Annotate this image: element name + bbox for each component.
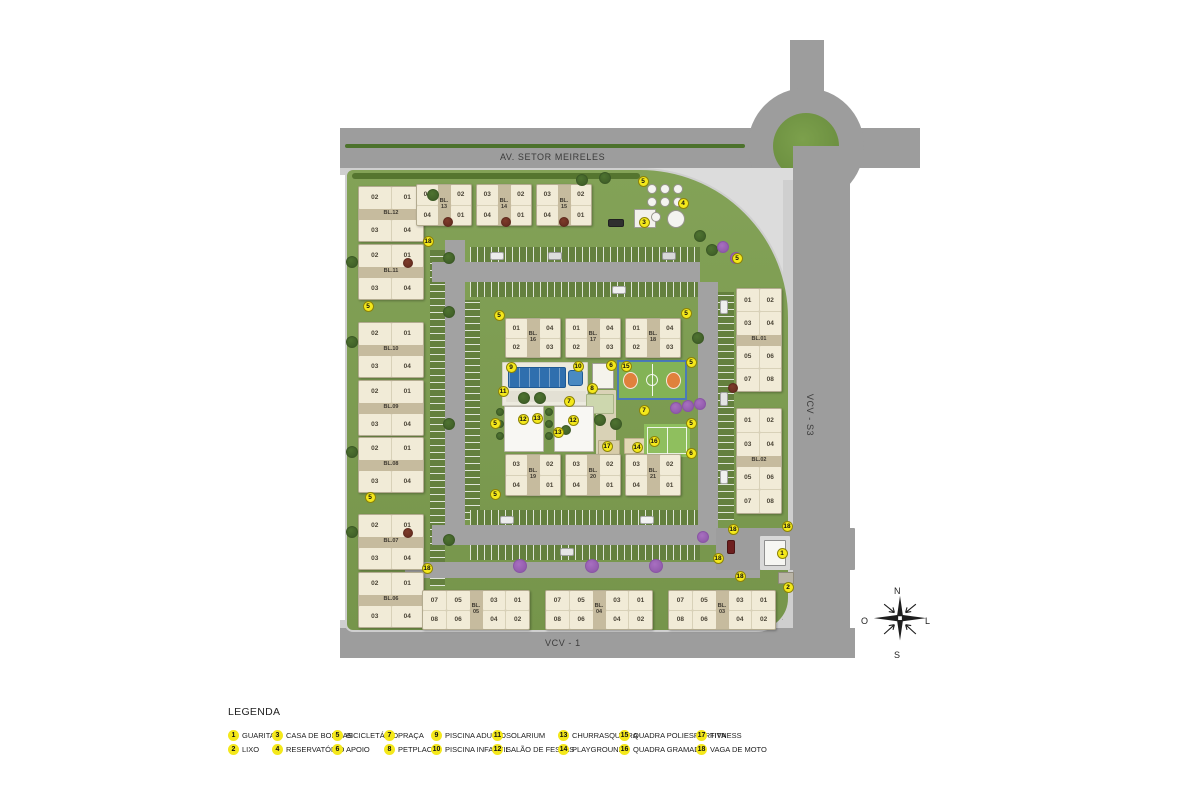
unit-04: 04 [600, 319, 621, 338]
green-tree [610, 418, 622, 430]
map-marker-1: 1 [777, 548, 788, 559]
parked-car [727, 540, 735, 554]
building-units: 07050806 [423, 591, 470, 629]
grass-court-mid-line [667, 427, 668, 454]
water-tank-small [651, 212, 661, 222]
unit-01: 01 [737, 289, 759, 311]
parked-car [720, 392, 728, 406]
building-units: 0403 [600, 319, 621, 357]
parking-stalls [465, 300, 480, 520]
building-label-BL.05: BL.05 [470, 591, 483, 629]
unit-08: 08 [423, 611, 446, 630]
unit-04: 04 [729, 611, 752, 630]
building-BL.06: 0201BL.060304 [358, 572, 424, 628]
building-label-BL.03: BL.03 [716, 591, 729, 629]
map-marker-18: 18 [422, 563, 433, 574]
building-units: 0201 [359, 187, 423, 209]
unit-02: 02 [506, 339, 527, 358]
unit-03: 03 [477, 185, 498, 205]
unit-03: 03 [540, 339, 561, 358]
green-tree [346, 526, 358, 538]
unit-01: 01 [629, 591, 652, 610]
legend-title: LEGENDA [228, 706, 280, 718]
map-marker-5: 5 [732, 253, 743, 264]
unit-01: 01 [626, 319, 647, 338]
green-tree [443, 534, 455, 546]
site-plan: AV. SETOR MEIRELES VCV - S3 VCV - 1 0201… [0, 0, 1200, 800]
map-marker-4: 4 [678, 198, 689, 209]
unit-03: 03 [359, 471, 391, 493]
building-BL.07: 0201BL.070304 [358, 514, 424, 570]
map-marker-3: 3 [639, 217, 650, 228]
purple-tree [670, 402, 682, 414]
unit-02: 02 [359, 438, 391, 460]
hedge-row [352, 173, 640, 179]
unit-07: 07 [737, 369, 759, 391]
unit-03: 03 [359, 220, 391, 242]
map-marker-5: 5 [363, 301, 374, 312]
unit-03: 03 [660, 339, 681, 358]
building-units: 0304 [537, 185, 558, 225]
map-marker-13: 13 [553, 427, 564, 438]
compass-rose-icon [872, 592, 928, 648]
unit-04: 04 [540, 319, 561, 338]
unit-05: 05 [737, 346, 759, 368]
purple-tree [694, 398, 706, 410]
building-units: 03010402 [606, 591, 653, 629]
compass-west-label: O [861, 616, 868, 626]
parked-car [560, 548, 574, 556]
red-tree [559, 217, 569, 227]
unit-02: 02 [660, 455, 681, 475]
building-label-BL.07: BL.07 [359, 537, 423, 548]
unit-02: 02 [359, 515, 391, 537]
unit-07: 07 [669, 591, 692, 610]
building-units: 07050806 [546, 591, 593, 629]
map-marker-5: 5 [490, 489, 501, 500]
unit-03: 03 [729, 591, 752, 610]
green-tree [427, 189, 439, 201]
building-units: 05060708 [737, 346, 781, 392]
kids-pool [568, 370, 583, 386]
map-marker-5: 5 [686, 357, 697, 368]
unit-04: 04 [566, 476, 587, 496]
green-tree [545, 408, 553, 416]
unit-06: 06 [760, 346, 782, 368]
water-tank-small [660, 197, 670, 207]
compass-east-label: L [925, 616, 930, 626]
red-tree [403, 528, 413, 538]
unit-04: 04 [483, 611, 506, 630]
green-tree [496, 408, 504, 416]
unit-03: 03 [359, 414, 391, 436]
water-tank-small [647, 184, 657, 194]
unit-03: 03 [737, 312, 759, 334]
green-tree [443, 252, 455, 264]
unit-05: 05 [693, 591, 716, 610]
building-units: 0201 [359, 323, 423, 345]
unit-08: 08 [760, 369, 782, 391]
map-marker-16: 16 [649, 436, 660, 447]
unit-01: 01 [511, 206, 532, 226]
unit-03: 03 [483, 591, 506, 610]
unit-01: 01 [451, 206, 472, 226]
building-units: 0102 [626, 319, 647, 357]
building-units: 0201 [359, 381, 423, 403]
map-marker-11: 11 [498, 386, 509, 397]
building-units: 0304 [566, 455, 587, 495]
unit-04: 04 [760, 433, 782, 456]
building-label-BL.17: BL.17 [587, 319, 600, 357]
map-marker-7: 7 [639, 405, 650, 416]
unit-01: 01 [392, 323, 424, 345]
map-marker-12: 12 [568, 415, 579, 426]
building-label-BL.18: BL.18 [647, 319, 660, 357]
map-marker-13: 13 [532, 413, 543, 424]
purple-tree [682, 400, 694, 412]
unit-03: 03 [359, 548, 391, 570]
green-tree [346, 336, 358, 348]
unit-04: 04 [477, 206, 498, 226]
green-tree [496, 432, 504, 440]
building-units: 0304 [359, 356, 423, 378]
building-units: 01020304 [737, 409, 781, 456]
building-BL.17: 0102BL.170403 [565, 318, 621, 358]
building-units: 03010402 [729, 591, 776, 629]
building-label-BL.21: BL.21 [647, 455, 660, 495]
unit-02: 02 [566, 339, 587, 358]
building-BL.21: 0304BL.210201 [625, 454, 681, 496]
green-tree [694, 230, 706, 242]
unit-06: 06 [570, 611, 593, 630]
building-label-BL.10: BL.10 [359, 345, 423, 356]
building-label-BL.19: BL.19 [527, 455, 540, 495]
unit-02: 02 [626, 339, 647, 358]
unit-08: 08 [546, 611, 569, 630]
green-tree [443, 306, 455, 318]
map-marker-18: 18 [713, 553, 724, 564]
unit-03: 03 [506, 455, 527, 475]
building-BL.20: 0304BL.200201 [565, 454, 621, 496]
unit-01: 01 [392, 381, 424, 403]
unit-03: 03 [359, 356, 391, 378]
building-BL.09: 0201BL.090304 [358, 380, 424, 436]
building-units: 03010402 [483, 591, 530, 629]
unit-04: 04 [392, 278, 424, 300]
building-BL.16: 0102BL.160403 [505, 318, 561, 358]
building-units: 0304 [626, 455, 647, 495]
unit-02: 02 [600, 455, 621, 475]
building-BL.03: 07050806BL.0303010402 [668, 590, 776, 630]
building-units: 0304 [359, 220, 423, 242]
unit-02: 02 [359, 573, 391, 595]
unit-02: 02 [571, 185, 592, 205]
unit-01: 01 [660, 476, 681, 496]
building-label-BL.06: BL.06 [359, 595, 423, 606]
building-label-BL.12: BL.12 [359, 209, 423, 220]
map-marker-5: 5 [490, 418, 501, 429]
condominium-map: 0201BL.1203040201BL.1103040201BL.1003040… [0, 0, 1200, 800]
building-units: 0403 [660, 319, 681, 357]
court-key-2 [666, 372, 681, 389]
building-BL.11: 0201BL.110304 [358, 244, 424, 300]
unit-01: 01 [506, 591, 529, 610]
unit-07: 07 [546, 591, 569, 610]
unit-07: 07 [423, 591, 446, 610]
building-units: 0102 [506, 319, 527, 357]
unit-08: 08 [760, 490, 782, 513]
unit-02: 02 [760, 409, 782, 432]
drive-aisle [445, 240, 465, 540]
map-marker-5: 5 [686, 418, 697, 429]
unit-01: 01 [737, 409, 759, 432]
green-tree [545, 420, 553, 428]
building-units: 0403 [540, 319, 561, 357]
unit-05: 05 [737, 467, 759, 490]
unit-04: 04 [392, 414, 424, 436]
building-units: 0304 [359, 471, 423, 493]
map-marker-18: 18 [735, 571, 746, 582]
green-tree [599, 172, 611, 184]
building-units: 05060708 [737, 467, 781, 514]
unit-02: 02 [511, 185, 532, 205]
building-label-BL.01: BL.01 [737, 335, 781, 346]
map-marker-7: 7 [564, 396, 575, 407]
green-tree [443, 418, 455, 430]
building-units: 0102 [566, 319, 587, 357]
unit-01: 01 [392, 573, 424, 595]
building-units: 07050806 [669, 591, 716, 629]
compass-north-label: N [894, 586, 901, 596]
building-BL.19: 0304BL.190201 [505, 454, 561, 496]
parked-car [720, 300, 728, 314]
map-marker-18: 18 [782, 521, 793, 532]
unit-02: 02 [760, 289, 782, 311]
building-label-BL.11: BL.11 [359, 267, 423, 278]
building-units: 0201 [359, 515, 423, 537]
parked-car [640, 516, 654, 524]
drive-aisle [432, 525, 718, 545]
green-tree [692, 332, 704, 344]
red-tree [501, 217, 511, 227]
court-key-1 [623, 372, 638, 389]
map-marker-6: 6 [686, 448, 697, 459]
unit-04: 04 [606, 611, 629, 630]
parked-car [720, 470, 728, 484]
building-units: 0304 [359, 548, 423, 570]
building-units: 0304 [506, 455, 527, 495]
building-BL.05: 07050806BL.0503010402 [422, 590, 530, 630]
unit-04: 04 [392, 548, 424, 570]
building-BL.02: 01020304BL.0205060708 [736, 408, 782, 514]
map-marker-5: 5 [681, 308, 692, 319]
building-units: 0304 [359, 278, 423, 300]
green-tree [576, 174, 588, 186]
purple-tree [649, 559, 663, 573]
green-tree [346, 446, 358, 458]
building-units: 0201 [511, 185, 532, 225]
building-units: 0201 [660, 455, 681, 495]
building-BL.08: 0201BL.080304 [358, 437, 424, 493]
building-BL.01: 01020304BL.0105060708 [736, 288, 782, 392]
unit-03: 03 [626, 455, 647, 475]
unit-02: 02 [359, 187, 391, 209]
unit-02: 02 [359, 245, 391, 267]
unit-01: 01 [566, 319, 587, 338]
parked-car [500, 516, 514, 524]
building-label-BL.08: BL.08 [359, 460, 423, 471]
map-marker-15: 15 [621, 361, 632, 372]
compass-south-label: S [894, 650, 900, 660]
building-units: 0304 [359, 606, 423, 628]
unit-01: 01 [392, 438, 424, 460]
green-tree [346, 256, 358, 268]
adult-pool [508, 367, 566, 388]
unit-04: 04 [506, 476, 527, 496]
water-tank-small [647, 197, 657, 207]
building-label-BL.20: BL.20 [587, 455, 600, 495]
unit-04: 04 [392, 356, 424, 378]
unit-03: 03 [537, 185, 558, 205]
red-tree [443, 217, 453, 227]
green-tree [545, 432, 553, 440]
unit-04: 04 [417, 206, 438, 226]
red-tree [403, 258, 413, 268]
unit-06: 06 [693, 611, 716, 630]
unit-07: 07 [737, 490, 759, 513]
unit-04: 04 [660, 319, 681, 338]
parked-car [548, 252, 562, 260]
unit-04: 04 [537, 206, 558, 226]
building-units: 01020304 [737, 289, 781, 335]
court-center-circle [646, 374, 658, 386]
unit-01: 01 [506, 319, 527, 338]
building-units: 0201 [359, 573, 423, 595]
unit-02: 02 [451, 185, 472, 205]
purple-tree [585, 559, 599, 573]
building-units: 0201 [571, 185, 592, 225]
building-units: 0304 [359, 414, 423, 436]
green-tree [594, 414, 606, 426]
unit-03: 03 [359, 278, 391, 300]
parked-car [612, 286, 626, 294]
unit-02: 02 [359, 323, 391, 345]
map-marker-5: 5 [365, 492, 376, 503]
unit-04: 04 [392, 606, 424, 628]
map-marker-17: 17 [602, 441, 613, 452]
building-BL.18: 0102BL.180403 [625, 318, 681, 358]
drive-aisle [432, 262, 700, 282]
building-units: 0201 [451, 185, 472, 225]
unit-01: 01 [752, 591, 775, 610]
green-tree [534, 392, 546, 404]
unit-03: 03 [606, 591, 629, 610]
map-marker-5: 5 [494, 310, 505, 321]
water-tank-small [673, 184, 683, 194]
building-label-BL.02: BL.02 [737, 456, 781, 467]
unit-04: 04 [760, 312, 782, 334]
unit-08: 08 [669, 611, 692, 630]
unit-02: 02 [752, 611, 775, 630]
unit-02: 02 [506, 611, 529, 630]
unit-03: 03 [600, 339, 621, 358]
map-marker-10: 10 [573, 361, 584, 372]
purple-tree [717, 241, 729, 253]
unit-01: 01 [540, 476, 561, 496]
building-BL.12: 0201BL.120304 [358, 186, 424, 242]
map-marker-9: 9 [506, 362, 517, 373]
map-marker-8: 8 [587, 383, 598, 394]
unit-04: 04 [392, 471, 424, 493]
map-marker-14: 14 [632, 442, 643, 453]
building-label-BL.16: BL.16 [527, 319, 540, 357]
green-tree [518, 392, 530, 404]
red-tree [728, 383, 738, 393]
parking-stalls [470, 545, 700, 560]
building-units: 0201 [540, 455, 561, 495]
map-marker-18: 18 [728, 524, 739, 535]
unit-06: 06 [760, 467, 782, 490]
unit-06: 06 [447, 611, 470, 630]
drive-aisle [405, 562, 760, 578]
parked-car [490, 252, 504, 260]
building-units: 0304 [477, 185, 498, 225]
purple-tree [697, 531, 709, 543]
unit-03: 03 [566, 455, 587, 475]
map-marker-2: 2 [783, 582, 794, 593]
unit-02: 02 [359, 381, 391, 403]
parked-car [662, 252, 676, 260]
unit-05: 05 [570, 591, 593, 610]
unit-02: 02 [540, 455, 561, 475]
building-units: 0201 [359, 438, 423, 460]
unit-01: 01 [571, 206, 592, 226]
building-units: 0201 [600, 455, 621, 495]
unit-03: 03 [737, 433, 759, 456]
building-label-BL.09: BL.09 [359, 403, 423, 414]
parking-stalls [718, 292, 734, 520]
purple-tree [513, 559, 527, 573]
unit-05: 05 [447, 591, 470, 610]
map-marker-12: 12 [518, 414, 529, 425]
parking-stalls [470, 282, 700, 297]
map-marker-5: 5 [638, 176, 649, 187]
unit-03: 03 [359, 606, 391, 628]
map-marker-6: 6 [606, 360, 617, 371]
water-tank-large [667, 210, 685, 228]
unit-02: 02 [629, 611, 652, 630]
building-BL.10: 0201BL.100304 [358, 322, 424, 378]
building-BL.04: 07050806BL.0403010402 [545, 590, 653, 630]
building-label-BL.04: BL.04 [593, 591, 606, 629]
parked-car [608, 219, 624, 227]
building-units: 0201 [359, 245, 423, 267]
unit-01: 01 [600, 476, 621, 496]
unit-04: 04 [626, 476, 647, 496]
map-marker-18: 18 [423, 236, 434, 247]
water-tank-small [660, 184, 670, 194]
